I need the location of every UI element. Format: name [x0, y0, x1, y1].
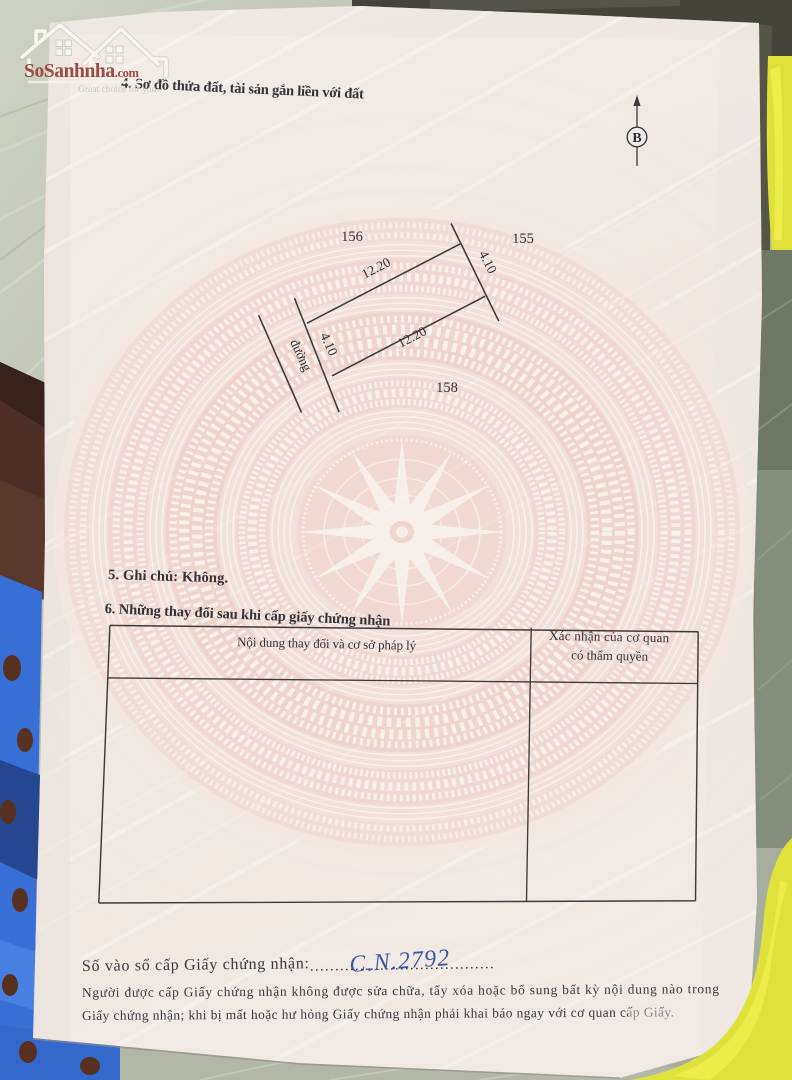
svg-text:có thẩm quyền: có thẩm quyền [571, 647, 649, 664]
svg-text:Xác nhận của cơ quan: Xác nhận của cơ quan [549, 628, 670, 646]
svg-text:156: 156 [341, 229, 363, 245]
svg-text:155: 155 [512, 231, 534, 247]
svg-text:B: B [632, 131, 641, 146]
svg-text:Số vào sổ cấp Giấy chứng nhận:: Số vào sổ cấp Giấy chứng nhận: [82, 955, 309, 975]
svg-text:158: 158 [436, 380, 458, 396]
svg-text:Great choice for you: Great choice for you [78, 84, 157, 95]
